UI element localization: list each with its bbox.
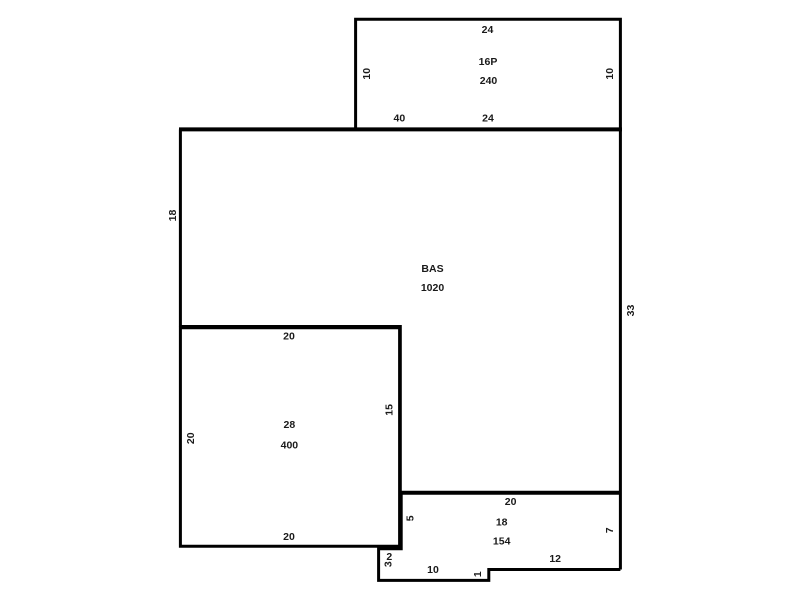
svg-text:15: 15 (384, 404, 396, 416)
svg-text:24: 24 (482, 24, 494, 36)
svg-text:18: 18 (496, 516, 508, 528)
svg-text:28: 28 (284, 419, 296, 431)
svg-text:BAS: BAS (421, 263, 443, 275)
svg-text:240: 240 (480, 75, 498, 87)
svg-text:400: 400 (281, 440, 299, 452)
svg-text:33: 33 (625, 305, 637, 317)
svg-text:20: 20 (505, 496, 517, 508)
svg-text:154: 154 (493, 536, 511, 548)
svg-text:40: 40 (394, 113, 406, 125)
svg-text:3: 3 (383, 561, 395, 567)
svg-text:2: 2 (386, 551, 392, 563)
svg-text:18: 18 (167, 210, 179, 222)
svg-text:1020: 1020 (421, 282, 445, 294)
svg-text:10: 10 (427, 564, 439, 576)
svg-text:10: 10 (361, 68, 373, 80)
svg-text:20: 20 (283, 531, 295, 543)
svg-text:16P: 16P (479, 56, 498, 68)
svg-text:1: 1 (472, 571, 484, 577)
svg-text:20: 20 (283, 331, 295, 343)
svg-text:10: 10 (604, 68, 616, 80)
svg-text:5: 5 (404, 515, 416, 521)
svg-text:12: 12 (549, 553, 561, 565)
svg-text:24: 24 (482, 113, 494, 125)
svg-text:20: 20 (185, 432, 197, 444)
svg-text:7: 7 (604, 527, 616, 533)
